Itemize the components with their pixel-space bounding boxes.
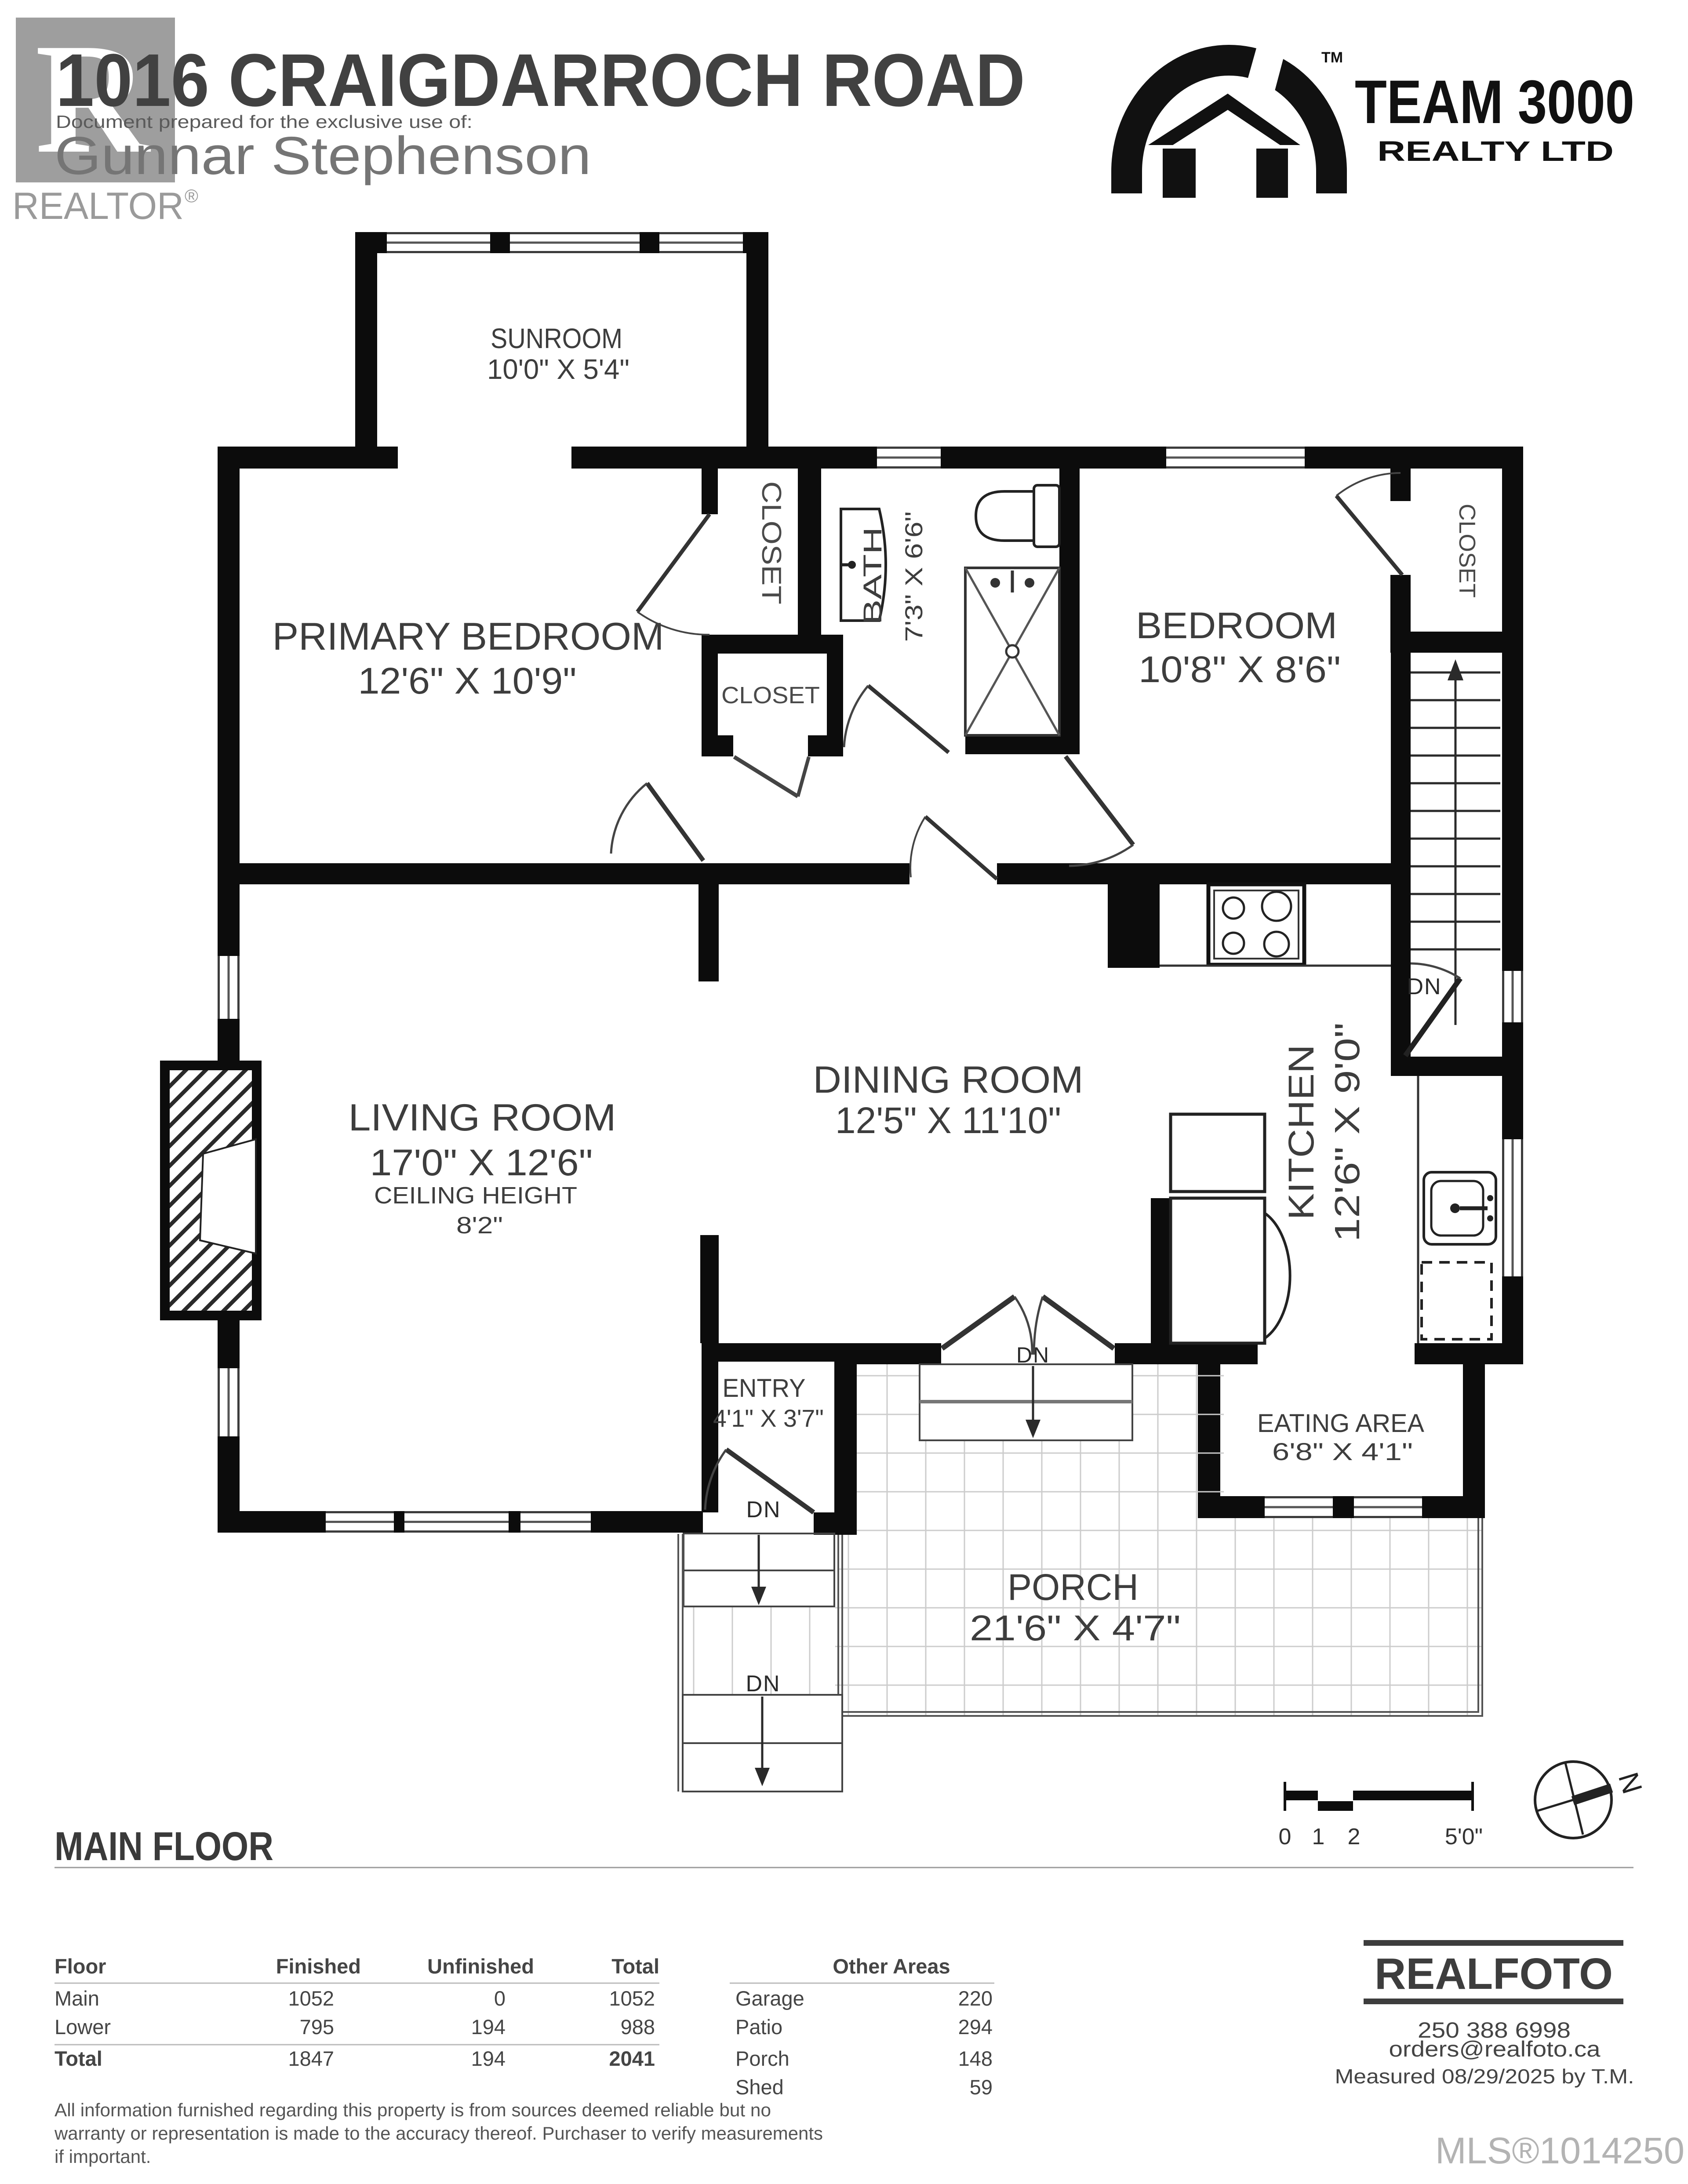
svg-text:Total: Total xyxy=(55,2047,102,2070)
svg-text:PRIMARY BEDROOM: PRIMARY BEDROOM xyxy=(273,614,664,658)
svg-text:4'1" X 3'7": 4'1" X 3'7" xyxy=(713,1404,824,1432)
svg-text:DN: DN xyxy=(746,1497,781,1523)
svg-text:Floor: Floor xyxy=(55,1955,106,1978)
svg-text:8'2": 8'2" xyxy=(456,1212,503,1239)
svg-text:Other Areas: Other Areas xyxy=(833,1955,950,1978)
svg-text:PORCH: PORCH xyxy=(1008,1566,1139,1608)
svg-text:warranty or representation is: warranty or representation is made to th… xyxy=(54,2123,823,2144)
svg-text:Lower: Lower xyxy=(55,2015,111,2039)
svg-text:CLOSET: CLOSET xyxy=(1454,504,1480,598)
svg-text:SUNROOM: SUNROOM xyxy=(491,323,622,354)
svg-text:194: 194 xyxy=(471,2047,506,2070)
svg-text:BATH: BATH xyxy=(859,527,887,625)
svg-text:1016 CRAIGDARROCH ROAD: 1016 CRAIGDARROCH ROAD xyxy=(56,39,1025,122)
svg-text:REALTY LTD: REALTY LTD xyxy=(1377,135,1614,167)
svg-text:Shed: Shed xyxy=(735,2075,784,2099)
svg-text:1: 1 xyxy=(1312,1824,1325,1850)
svg-text:Measured 08/29/2025 by T.M.: Measured 08/29/2025 by T.M. xyxy=(1335,2065,1634,2088)
svg-text:0: 0 xyxy=(494,1987,506,2010)
svg-text:0: 0 xyxy=(1279,1824,1291,1850)
svg-text:MAIN FLOOR: MAIN FLOOR xyxy=(55,1824,273,1869)
svg-text:DN: DN xyxy=(746,1671,780,1697)
svg-text:TEAM 3000: TEAM 3000 xyxy=(1355,67,1634,136)
svg-text:10'0" X 5'4": 10'0" X 5'4" xyxy=(487,353,629,385)
svg-text:CLOSET: CLOSET xyxy=(756,481,786,604)
svg-text:1052: 1052 xyxy=(288,1987,334,2010)
svg-text:148: 148 xyxy=(958,2047,993,2070)
svg-text:Patio: Patio xyxy=(735,2015,782,2039)
svg-text:5'0": 5'0" xyxy=(1445,1824,1483,1850)
svg-text:12'6" X 9'0": 12'6" X 9'0" xyxy=(1328,1023,1367,1242)
svg-text:if important.: if important. xyxy=(55,2146,151,2167)
svg-text:12'5" X 11'10": 12'5" X 11'10" xyxy=(835,1100,1061,1141)
svg-text:orders@realfoto.ca: orders@realfoto.ca xyxy=(1389,2037,1601,2061)
svg-text:2041: 2041 xyxy=(609,2047,655,2070)
svg-text:17'0" X 12'6": 17'0" X 12'6" xyxy=(370,1142,593,1183)
svg-text:All information furnished rega: All information furnished regarding this… xyxy=(55,2100,771,2120)
svg-text:DN: DN xyxy=(1407,974,1441,999)
svg-text:12'6" X 10'9": 12'6" X 10'9" xyxy=(358,660,577,701)
svg-text:2: 2 xyxy=(1348,1824,1361,1850)
svg-text:6'8" X 4'1": 6'8" X 4'1" xyxy=(1272,1438,1413,1465)
svg-text:Porch: Porch xyxy=(735,2047,789,2070)
svg-text:Total: Total xyxy=(611,1955,659,1978)
svg-text:1052: 1052 xyxy=(609,1987,655,2010)
svg-text:Finished: Finished xyxy=(276,1955,361,1978)
svg-text:21'6" X 4'7": 21'6" X 4'7" xyxy=(970,1608,1181,1648)
svg-text:CLOSET: CLOSET xyxy=(721,682,820,709)
svg-text:10'8" X 8'6": 10'8" X 8'6" xyxy=(1139,649,1341,690)
svg-text:®: ® xyxy=(185,185,198,206)
svg-text:DINING ROOM: DINING ROOM xyxy=(813,1059,1084,1101)
svg-text:7'3" X 6'6": 7'3" X 6'6" xyxy=(900,512,928,642)
svg-text:220: 220 xyxy=(958,1987,993,2010)
svg-text:1847: 1847 xyxy=(288,2047,334,2070)
svg-text:59: 59 xyxy=(970,2075,993,2099)
svg-text:REALTOR: REALTOR xyxy=(12,185,184,227)
svg-text:TM: TM xyxy=(1321,49,1343,66)
svg-text:Garage: Garage xyxy=(735,1987,804,2010)
svg-text:988: 988 xyxy=(621,2015,655,2039)
svg-text:N: N xyxy=(1612,1769,1648,1797)
svg-text:795: 795 xyxy=(300,2015,334,2039)
svg-text:294: 294 xyxy=(958,2015,993,2039)
svg-text:MLS®1014250: MLS®1014250 xyxy=(1435,2130,1684,2171)
svg-text:LIVING ROOM: LIVING ROOM xyxy=(349,1097,616,1139)
svg-text:ENTRY: ENTRY xyxy=(723,1374,806,1403)
svg-text:Unfinished: Unfinished xyxy=(427,1955,534,1978)
svg-text:BEDROOM: BEDROOM xyxy=(1136,605,1337,646)
svg-text:KITCHEN: KITCHEN xyxy=(1281,1045,1321,1220)
svg-text:Gunnar Stephenson: Gunnar Stephenson xyxy=(55,126,591,185)
svg-text:194: 194 xyxy=(471,2015,506,2039)
svg-text:EATING AREA: EATING AREA xyxy=(1257,1409,1424,1438)
svg-text:Main: Main xyxy=(55,1987,99,2010)
svg-text:REALFOTO: REALFOTO xyxy=(1375,1949,1613,1999)
svg-text:CEILING HEIGHT: CEILING HEIGHT xyxy=(374,1182,577,1209)
